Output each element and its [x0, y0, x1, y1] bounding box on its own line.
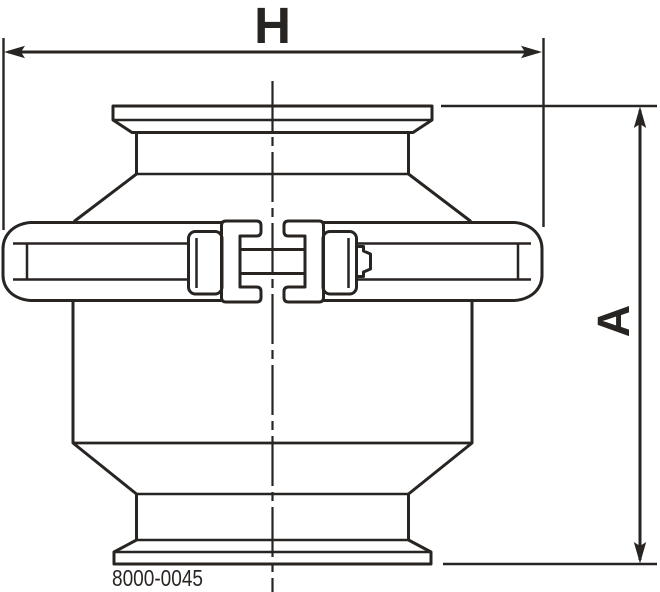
clamp-bolt-tip — [357, 247, 371, 277]
dimension-h-label: H — [254, 0, 291, 54]
clamp-left-lug — [189, 232, 223, 295]
dimension-a-label: A — [588, 305, 639, 338]
technical-drawing-canvas: H A 8000-0045 — [0, 0, 660, 592]
part-number-label: 8000-0045 — [112, 565, 203, 591]
clamp-right-lug — [323, 232, 357, 295]
valve-dimension-drawing: H A 8000-0045 — [0, 0, 660, 592]
clamp-left-yoke — [222, 221, 262, 302]
clamp-right-yoke — [284, 221, 324, 302]
